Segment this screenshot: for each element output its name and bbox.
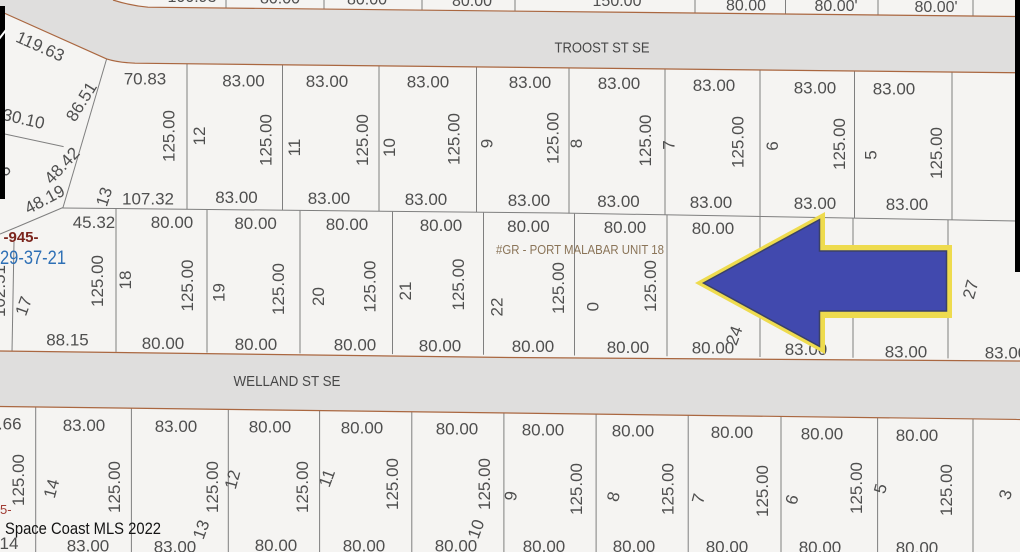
svg-text:21: 21: [396, 282, 415, 301]
svg-text:83.00: 83.00: [693, 76, 736, 95]
svg-text:80.00: 80.00: [255, 536, 298, 552]
svg-text:125.00: 125.00: [937, 464, 956, 516]
svg-text:80.00: 80.00: [613, 537, 656, 552]
svg-text:45.32: 45.32: [73, 213, 116, 232]
svg-text:83.00: 83.00: [222, 72, 265, 91]
svg-text:125.00: 125.00: [293, 461, 312, 513]
svg-text:102.51: 102.51: [0, 265, 9, 317]
svg-text:5-: 5-: [0, 502, 12, 517]
svg-text:80.00: 80.00: [726, 0, 766, 15]
svg-text:83.00: 83.00: [508, 191, 551, 210]
svg-text:125.00: 125.00: [445, 113, 464, 165]
svg-text:125.00: 125.00: [636, 115, 655, 167]
svg-text:80.00: 80.00: [142, 334, 185, 353]
svg-text:10: 10: [380, 138, 399, 157]
svg-text:80.00: 80.00: [612, 422, 655, 441]
svg-text:80.00: 80.00: [711, 423, 754, 442]
svg-text:80.00: 80.00: [436, 420, 479, 439]
svg-text:80.00: 80.00: [801, 425, 844, 444]
svg-text:80.00: 80.00: [507, 217, 550, 236]
svg-text:125.00: 125.00: [544, 112, 563, 164]
svg-text:125.00: 125.00: [9, 454, 28, 506]
svg-text:11: 11: [285, 139, 304, 157]
svg-text:107.32: 107.32: [122, 190, 174, 209]
svg-text:0: 0: [583, 302, 602, 311]
svg-text:TROOST ST SE: TROOST ST SE: [555, 40, 650, 57]
svg-text:83.00: 83.00: [690, 193, 733, 212]
svg-text:83.00: 83.00: [985, 344, 1020, 363]
svg-text:83.00: 83.00: [306, 72, 349, 91]
svg-text:125.00: 125.00: [353, 114, 372, 166]
svg-text:83.00: 83.00: [598, 74, 641, 93]
svg-text:125.00: 125.00: [549, 262, 568, 314]
svg-text:150.00: 150.00: [593, 0, 642, 10]
svg-text:83.00: 83.00: [597, 192, 640, 211]
svg-text:-945-: -945-: [3, 229, 38, 246]
svg-text:80.00: 80.00: [235, 335, 278, 354]
svg-text:125.00: 125.00: [641, 260, 660, 312]
svg-text:125.00: 125.00: [88, 255, 107, 307]
svg-text:80.00: 80.00: [343, 537, 386, 552]
svg-text:18: 18: [116, 271, 135, 290]
svg-text:83.00: 83.00: [308, 189, 351, 208]
svg-text:125.00: 125.00: [449, 259, 468, 311]
svg-text:125.00: 125.00: [269, 263, 288, 315]
svg-text:70.83: 70.83: [124, 70, 167, 89]
svg-text:19: 19: [210, 283, 229, 302]
svg-text:125.00: 125.00: [160, 110, 179, 162]
svg-text:83.00: 83.00: [67, 537, 110, 552]
svg-text:6: 6: [763, 141, 782, 150]
svg-text:80.00: 80.00: [341, 419, 384, 438]
svg-text:125.00: 125.00: [927, 127, 946, 179]
svg-text:20: 20: [309, 287, 328, 306]
svg-text:125.00: 125.00: [475, 458, 494, 510]
svg-text:125.00: 125.00: [105, 461, 124, 513]
svg-text:125.00: 125.00: [361, 261, 380, 313]
svg-text:83.00: 83.00: [886, 195, 929, 214]
svg-text:83.00: 83.00: [63, 416, 106, 435]
svg-text:80.00: 80.00: [512, 337, 555, 356]
svg-text:80.00: 80.00: [435, 537, 478, 552]
svg-text:125.00: 125.00: [567, 463, 586, 515]
svg-text:83.00: 83.00: [794, 194, 837, 213]
svg-text:22: 22: [488, 298, 507, 317]
svg-text:80.00: 80.00: [706, 538, 749, 552]
svg-text:#GR - PORT MALABAR UNIT 18: #GR - PORT MALABAR UNIT 18: [496, 243, 664, 257]
svg-text:125.00: 125.00: [729, 116, 748, 168]
svg-text:9: 9: [478, 139, 497, 148]
svg-text:80.00: 80.00: [607, 338, 650, 357]
svg-text:80.00: 80.00: [260, 0, 300, 8]
svg-text:29-37-21: 29-37-21: [0, 248, 66, 269]
svg-text:12: 12: [190, 127, 209, 146]
svg-text:80.00': 80.00': [914, 0, 957, 16]
svg-text:80.00: 80.00: [896, 426, 939, 445]
svg-text:100.93: 100.93: [168, 0, 217, 6]
svg-text:WELLAND ST SE: WELLAND ST SE: [234, 373, 341, 390]
svg-text:125.00: 125.00: [178, 260, 197, 312]
svg-text:80.00: 80.00: [523, 537, 566, 552]
svg-text:83.00: 83.00: [405, 190, 448, 209]
svg-text:8: 8: [567, 139, 586, 148]
svg-text:125.00: 125.00: [847, 462, 866, 514]
svg-text:125.00: 125.00: [753, 465, 772, 517]
svg-text:125.00: 125.00: [257, 114, 276, 166]
svg-text:80.00: 80.00: [151, 213, 194, 232]
svg-text:80.00: 80.00: [522, 421, 565, 440]
svg-text:80.00: 80.00: [334, 336, 377, 355]
svg-text:125.00: 125.00: [659, 463, 678, 515]
svg-text:125.00: 125.00: [830, 118, 849, 170]
svg-text:83.00: 83.00: [407, 73, 450, 92]
svg-text:Space Coast MLS 2022: Space Coast MLS 2022: [5, 520, 161, 538]
svg-text:88.15: 88.15: [46, 331, 89, 350]
svg-text:80.00: 80.00: [249, 418, 292, 437]
svg-text:80.00': 80.00': [814, 0, 857, 15]
svg-text:83.00: 83.00: [154, 538, 197, 552]
svg-text:83.00: 83.00: [509, 73, 552, 92]
svg-text:5: 5: [862, 150, 881, 159]
svg-text:80.00: 80.00: [692, 219, 735, 238]
svg-text:83.00: 83.00: [873, 80, 916, 99]
svg-text:4.66: 4.66: [0, 415, 22, 434]
svg-text:125.00: 125.00: [383, 458, 402, 510]
svg-text:80.00: 80.00: [326, 215, 369, 234]
svg-text:80.00: 80.00: [896, 539, 939, 552]
svg-text:80.00: 80.00: [452, 0, 492, 10]
svg-text:80.00: 80.00: [234, 214, 277, 233]
svg-text:83.00: 83.00: [215, 188, 258, 207]
svg-text:80.00: 80.00: [347, 0, 387, 9]
svg-text:80.00: 80.00: [604, 218, 647, 237]
svg-text:80.00: 80.00: [799, 538, 842, 552]
svg-text:80.00: 80.00: [419, 337, 462, 356]
svg-text:83.00: 83.00: [885, 343, 928, 362]
svg-text:83.00: 83.00: [794, 79, 837, 98]
svg-text:125.00: 125.00: [203, 461, 222, 513]
svg-text:7: 7: [660, 140, 679, 149]
svg-text:83.00: 83.00: [155, 417, 198, 436]
svg-text:80.00: 80.00: [420, 216, 463, 235]
